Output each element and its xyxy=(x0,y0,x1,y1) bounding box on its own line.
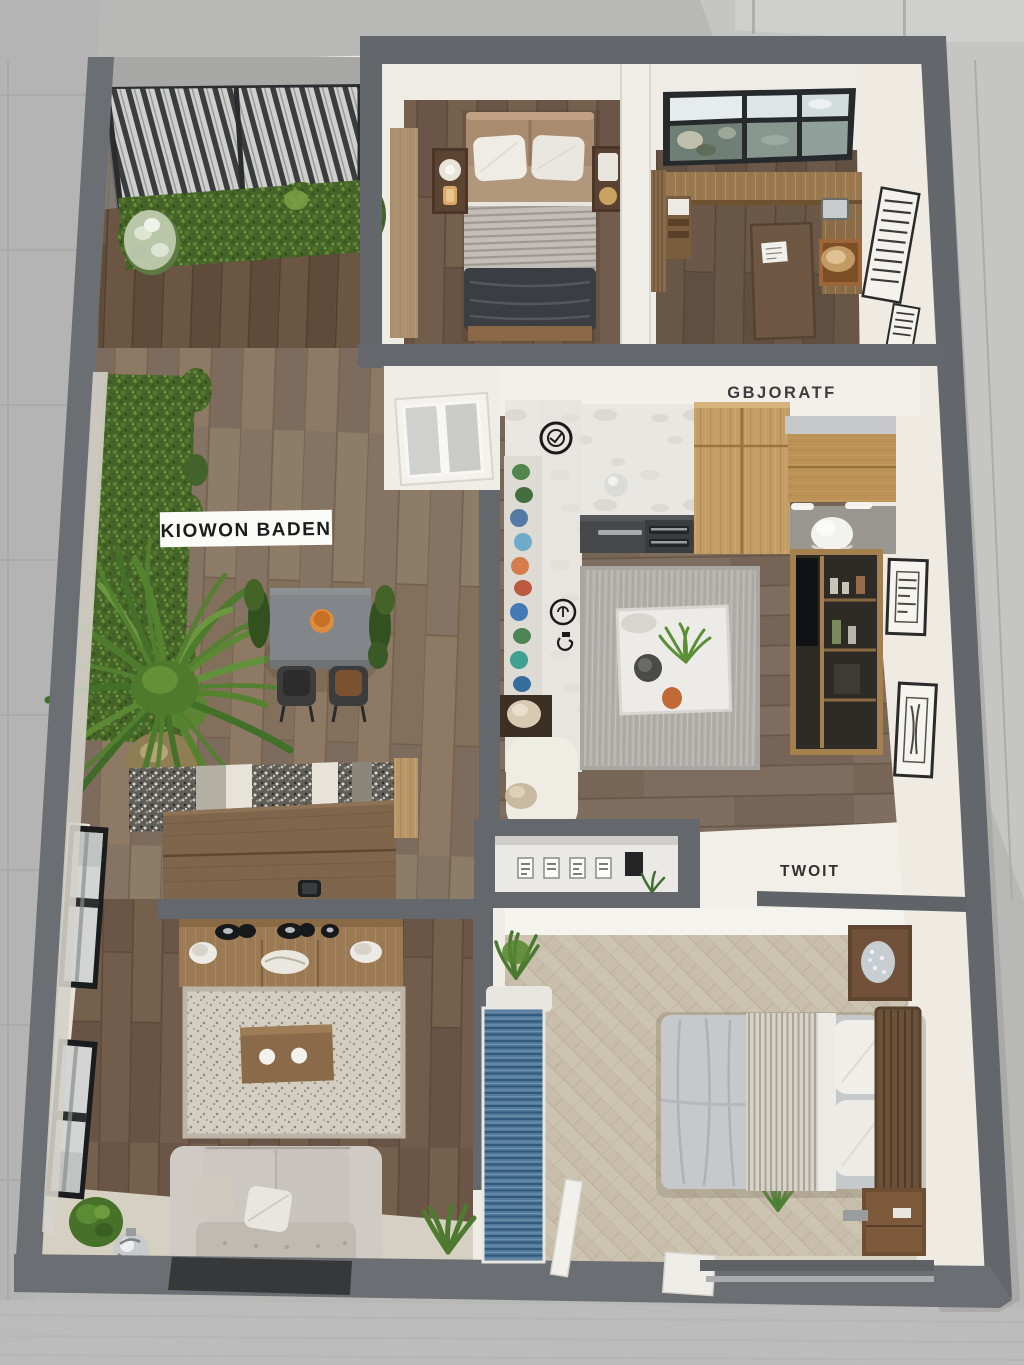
svg-text:GBJORATF: GBJORATF xyxy=(727,384,837,402)
svg-text:TWOIT: TWOIT xyxy=(780,863,840,880)
svg-text:KIOWON BADEN: KIOWON BADEN xyxy=(160,519,331,542)
